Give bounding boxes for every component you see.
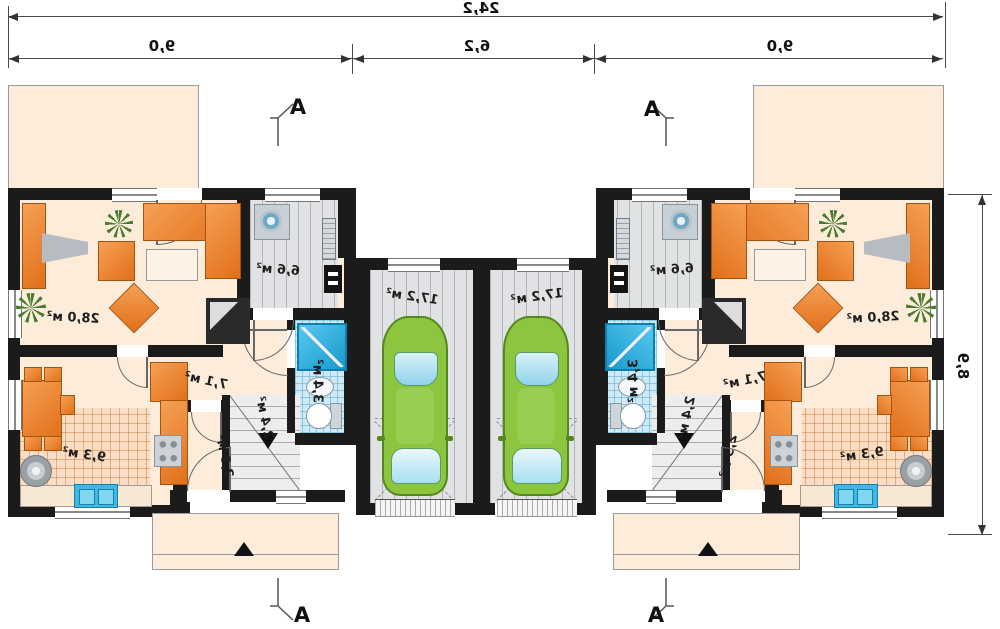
- door-leaf: [698, 320, 700, 360]
- door-leaf: [146, 357, 148, 388]
- terrace: [8, 85, 199, 190]
- garage-door: [497, 499, 577, 517]
- wall: [473, 258, 490, 515]
- dim-label-right: 9,0: [767, 37, 794, 55]
- entrance-arrow-icon: [698, 542, 718, 556]
- dim-tick: [594, 44, 595, 74]
- fireplace: [206, 298, 250, 344]
- stove: [154, 435, 182, 467]
- exterior-cutout: [607, 502, 762, 513]
- dim-arrow: [341, 55, 351, 63]
- door-opening: [187, 490, 230, 502]
- coffee-table: [146, 249, 198, 281]
- armchair: [98, 241, 135, 281]
- chair: [24, 367, 42, 382]
- dim-tick: [352, 44, 353, 74]
- dim-arrow: [933, 13, 943, 21]
- kitchen-sink: [74, 484, 118, 508]
- garage-door: [375, 499, 455, 517]
- dim-ext-tick: [945, 2, 946, 68]
- section-marker-a: A: [648, 603, 664, 627]
- window: [388, 258, 440, 272]
- kitchen-counter: [764, 362, 802, 402]
- floor-plan: 24,2 9,0 6,2 9,0 8,9 A A A A: [0, 0, 1000, 629]
- radiator: [322, 218, 336, 260]
- house-left: [8, 85, 356, 570]
- electrical-panel: [610, 265, 628, 293]
- water-heater: [900, 455, 932, 487]
- room-label-living-right: 28,0 м²: [846, 309, 900, 327]
- wall: [932, 188, 944, 517]
- chair: [910, 436, 928, 451]
- wall: [729, 345, 804, 357]
- dining-table: [22, 380, 62, 437]
- dim-label-total: 24,2: [462, 0, 499, 17]
- window: [276, 490, 306, 504]
- washing-machine: [254, 204, 290, 240]
- dim-arrow: [932, 55, 942, 63]
- wall: [356, 258, 370, 515]
- room-label-bathroom-left: 3,4 м²: [310, 359, 325, 403]
- plant-icon: [16, 293, 46, 323]
- stove: [770, 435, 798, 467]
- door-opening: [659, 308, 699, 320]
- dim-line-segments: [8, 58, 943, 59]
- door-opening: [117, 345, 148, 357]
- room-label-vestibule-right: 6,6 м²: [650, 261, 695, 279]
- dim-label-depth: 8,9: [954, 353, 972, 380]
- chair: [890, 436, 908, 451]
- room-label-living-left: 28,0 м²: [46, 309, 100, 327]
- wall: [834, 345, 932, 357]
- sofa: [205, 203, 241, 279]
- wall: [20, 345, 118, 357]
- dim-arrow: [596, 55, 606, 63]
- door-opening: [731, 400, 761, 412]
- window: [794, 188, 840, 202]
- dim-arrow: [354, 55, 364, 63]
- chair: [60, 395, 75, 415]
- room-label-bathroom-right: 3,4 м²: [627, 359, 642, 403]
- dim-arrow: [8, 13, 18, 21]
- wall: [455, 503, 495, 515]
- terrace: [753, 85, 944, 190]
- plant-icon: [906, 293, 936, 323]
- wall: [148, 345, 223, 357]
- chair: [24, 436, 42, 451]
- toilet: [306, 403, 332, 429]
- door-leaf: [253, 320, 255, 360]
- water-heater: [20, 455, 52, 487]
- plant-icon: [105, 210, 133, 238]
- dim-line-depth: [982, 195, 983, 535]
- wall: [356, 503, 375, 515]
- car: [382, 316, 448, 496]
- exterior-cutout: [190, 502, 345, 513]
- coffee-table: [754, 249, 806, 281]
- door-opening: [157, 188, 202, 200]
- door-opening: [804, 345, 835, 357]
- section-elbow-icon: [267, 576, 295, 622]
- chair: [44, 436, 62, 451]
- door-opening: [191, 400, 221, 412]
- chair: [44, 367, 62, 382]
- wall: [582, 258, 596, 515]
- section-marker-a: A: [294, 603, 310, 627]
- window: [8, 380, 22, 430]
- wall: [295, 433, 356, 445]
- wall: [8, 188, 20, 517]
- door-opening: [750, 188, 795, 200]
- dim-label-left: 9,0: [149, 37, 176, 55]
- dim-arrow: [9, 55, 19, 63]
- car: [503, 316, 569, 496]
- sofa: [711, 203, 747, 279]
- washing-machine: [662, 204, 698, 240]
- door-leaf: [805, 357, 807, 388]
- fireplace: [702, 298, 746, 344]
- radiator: [616, 218, 630, 260]
- plant-icon: [819, 210, 847, 238]
- entrance-arrow-icon: [234, 542, 254, 556]
- kitchen-sink: [834, 484, 878, 508]
- chair: [890, 367, 908, 382]
- dim-ext-tick: [948, 194, 992, 195]
- window: [646, 490, 676, 504]
- chair: [877, 395, 892, 415]
- room-label-vestibule-left: 6,6 м²: [256, 261, 301, 279]
- dim-arrow: [978, 195, 986, 205]
- window: [112, 188, 158, 202]
- chair: [910, 367, 928, 382]
- wall: [596, 433, 657, 445]
- window: [517, 258, 569, 272]
- door-opening: [253, 308, 293, 320]
- dim-ext-tick: [948, 534, 992, 535]
- wall: [577, 503, 596, 515]
- dim-label-middle: 6,2: [464, 37, 491, 55]
- window: [930, 380, 944, 430]
- window: [632, 188, 687, 202]
- armchair: [817, 241, 854, 281]
- house-right: [596, 85, 944, 570]
- dim-arrow: [583, 55, 593, 63]
- door-opening: [722, 490, 765, 502]
- electrical-panel: [324, 265, 342, 293]
- toilet: [620, 403, 646, 429]
- window: [265, 188, 320, 202]
- dining-table: [890, 380, 930, 437]
